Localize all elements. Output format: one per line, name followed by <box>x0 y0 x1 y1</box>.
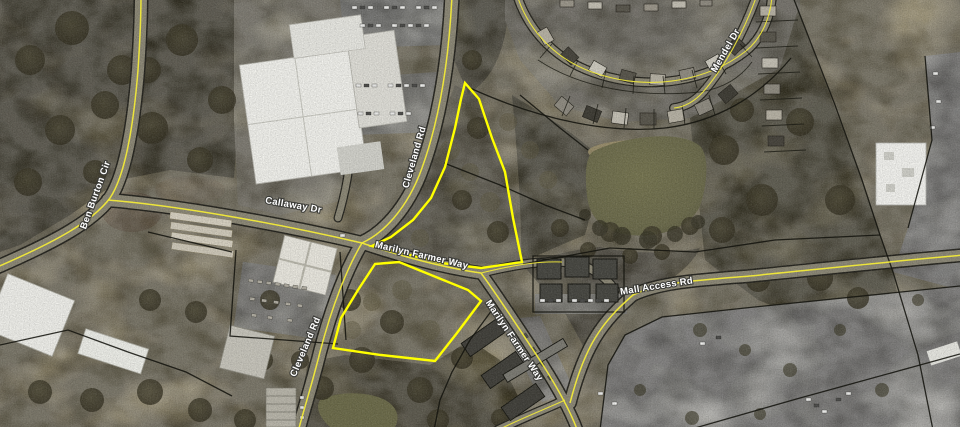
grain-light <box>0 0 960 427</box>
aerial-basemap: Ben Burton Cir Callaway Dr Cleveland Rd … <box>0 0 960 427</box>
aerial-map-view[interactable]: Ben Burton Cir Callaway Dr Cleveland Rd … <box>0 0 960 427</box>
